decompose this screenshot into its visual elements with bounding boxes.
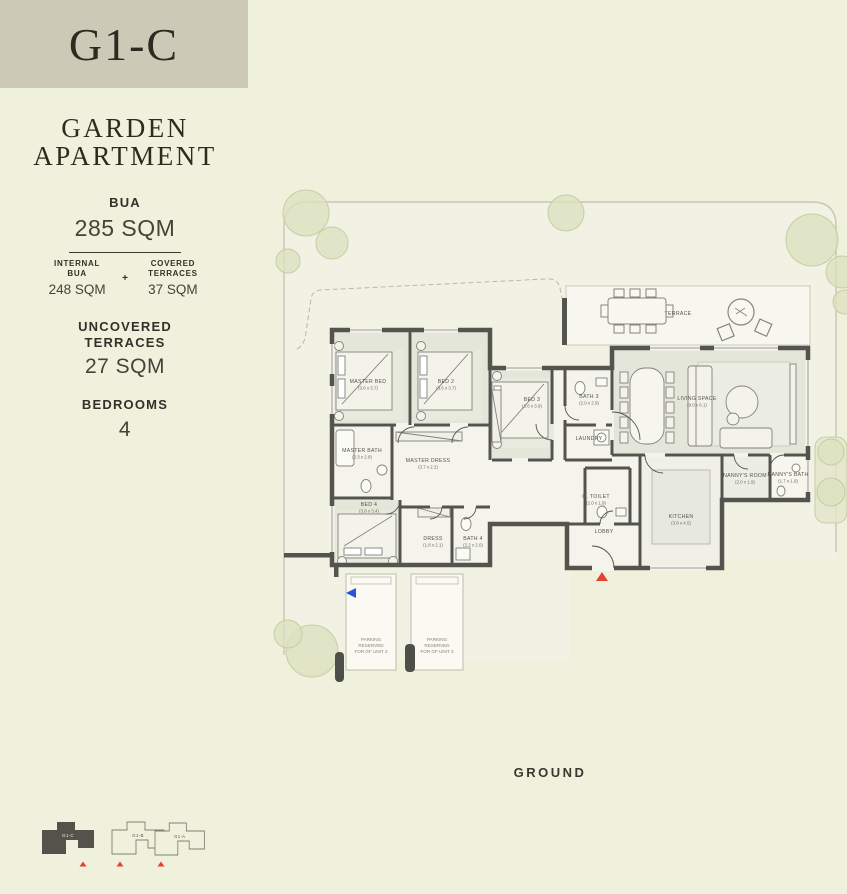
internal-bua-column: INTERNAL BUA 248 SQM (38, 259, 116, 297)
parking-label-2-line3: FOR GF UNIT 3 (420, 649, 454, 654)
internal-bua-label-line2: BUA (38, 269, 116, 279)
keyplan-label-g1a: G1-A (174, 834, 185, 839)
apartment-title-line1: GARDEN (0, 114, 250, 142)
keyplan-unit-g1c[interactable]: G1-C (42, 822, 94, 854)
keyplan-unit-g1a[interactable]: G1-A (155, 823, 204, 855)
bua-label: BUA (0, 195, 250, 211)
covered-terraces-column: COVERED TERRACES 37 SQM (134, 259, 212, 297)
building-key-plan: G1-C G1-B G1-A (38, 816, 208, 877)
room-label-laundry: LAUNDRY (576, 436, 603, 442)
room-dims-nannys-room: (2.0 x 1.9) (735, 480, 755, 485)
unit-code: G1-C (69, 18, 179, 71)
room-label-bed-4: BED 4 (361, 502, 378, 508)
room-label-bed-3: BED 3 (524, 397, 541, 403)
room-label-g-toilet: G. TOILET (582, 494, 610, 500)
uncovered-terraces-label: UNCOVERED TERRACES (0, 319, 250, 352)
covered-terraces-value: 37 SQM (134, 282, 212, 297)
plus-sign: + (122, 271, 128, 284)
room-dims-bed-3: (3.6 x 3.9) (522, 404, 542, 409)
bua-value: 285 SQM (0, 215, 250, 242)
apartment-title-line2: APARTMENT (0, 142, 250, 170)
apartment-title: GARDEN APARTMENT (0, 114, 250, 171)
uncovered-terraces-label-line2: TERRACES (0, 335, 250, 351)
kitchen-island-icon (652, 470, 710, 544)
room-dims-g-toilet: (2.0 x 1.9) (586, 501, 606, 506)
room-dims-nannys-bath: (1.7 x 1.9) (778, 479, 798, 484)
room-label-master-bath: MASTER BATH (342, 448, 382, 454)
covered-terraces-label-line2: TERRACES (134, 269, 212, 279)
room-dims-master-dress: (3.7 x 2.2) (418, 465, 438, 470)
parking-label-1-line2: RESERVED (358, 643, 384, 648)
room-label-master-bed: MASTER BED (350, 379, 387, 385)
parking-label-2-line1: PARKING (427, 637, 448, 642)
room-label-master-dress: MASTER DRESS (406, 458, 451, 464)
entry-marker-icon (596, 572, 608, 581)
room-label-lobby: LOBBY (595, 529, 614, 535)
room-dims-dress: (1.8 x 2.1) (423, 543, 443, 548)
uncovered-terraces-value: 27 SQM (0, 355, 250, 379)
room-dims-kitchen: (3.8 x 4.5) (671, 521, 691, 526)
unit-code-header: G1-C (0, 0, 248, 88)
divider (69, 252, 181, 253)
room-dims-master-bath: (2.3 x 2.8) (352, 455, 372, 460)
room-dims-living-space: (9.0 x 6.1) (687, 403, 707, 408)
room-label-nannys-bath: NANNY'S BATH (767, 472, 808, 478)
room-dims-bed-4: (3.8 x 3.4) (359, 509, 379, 514)
room-label-nannys-room: NANNY'S ROOM (723, 473, 767, 479)
room-label-kitchen: KITCHEN (669, 514, 694, 520)
room-label-dress: DRESS (423, 536, 443, 542)
uncovered-terraces-label-line1: UNCOVERED (0, 319, 250, 335)
bed-icon-4 (336, 510, 400, 566)
bedrooms-value: 4 (0, 418, 250, 442)
covered-terraces-label-line1: COVERED (134, 259, 212, 269)
room-dims-master-bed: (3.6 x 3.7) (358, 386, 378, 391)
keyplan-label-g1b: G1-B (132, 833, 144, 838)
bedrooms-label: BEDROOMS (0, 397, 250, 413)
parking-label-2-line2: RESERVED (424, 643, 450, 648)
room-dims-bath-4: (2.2 x 2.0) (463, 543, 483, 548)
sidebar: G1-C GARDEN APARTMENT BUA 285 SQM INTERN… (0, 0, 250, 894)
room-label-bed-2: BED 2 (438, 379, 455, 385)
room-label-living-space: LIVING SPACE (677, 396, 716, 402)
internal-bua-value: 248 SQM (38, 282, 116, 297)
parking-label-1-line1: PARKING (361, 637, 382, 642)
room-label-bath-3: BATH 3 (579, 394, 599, 400)
bua-breakdown: INTERNAL BUA 248 SQM + COVERED TERRACES … (30, 259, 220, 297)
internal-bua-label-line1: INTERNAL (38, 259, 116, 269)
floor-label: GROUND (250, 765, 847, 780)
parking-label-1-line3: FOR GF UNIT 3 (354, 649, 388, 654)
room-label-bath-4: BATH 4 (463, 536, 483, 542)
keyplan-label-g1c: G1-C (62, 833, 74, 838)
keyplan-entry-marker-icons (80, 862, 165, 867)
living-furniture (620, 362, 796, 448)
room-dims-bed-2: (3.6 x 3.7) (436, 386, 456, 391)
room-dims-bath-3: (2.0 x 2.9) (579, 401, 599, 406)
room-label-terrace: TERRACE (665, 311, 692, 317)
